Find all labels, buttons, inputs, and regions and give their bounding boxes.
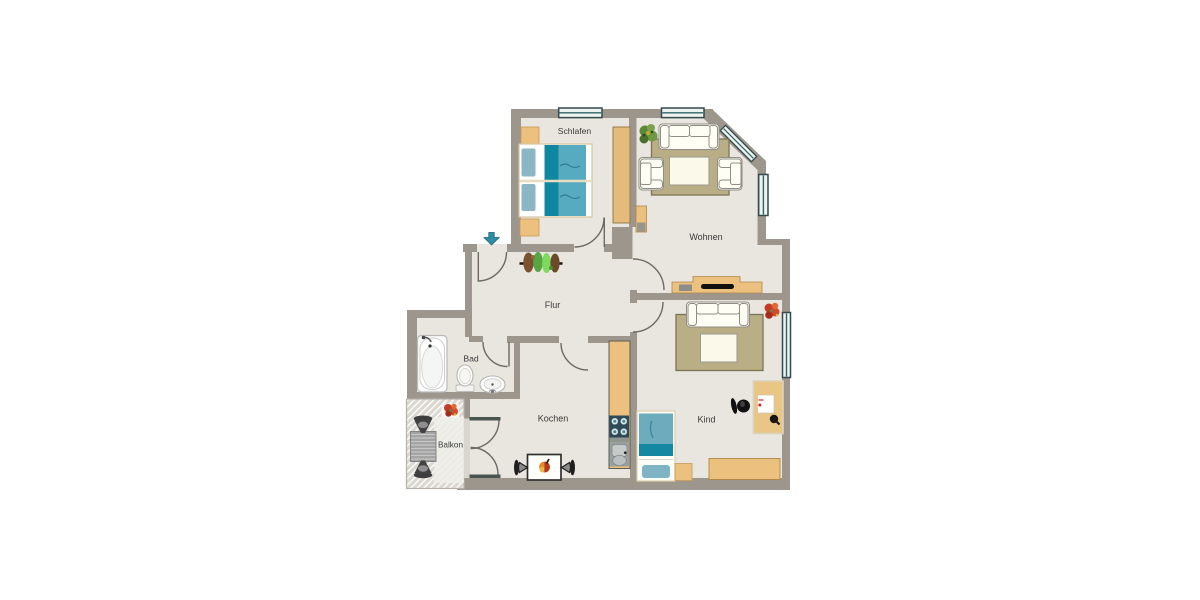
svg-text:Flur: Flur <box>545 300 561 310</box>
svg-text:Balkon: Balkon <box>438 441 463 450</box>
svg-text:Kochen: Kochen <box>538 414 569 424</box>
svg-text:Schlafen: Schlafen <box>558 126 592 136</box>
svg-text:Bad: Bad <box>463 354 479 364</box>
svg-text:Kind: Kind <box>697 415 715 425</box>
svg-text:Wohnen: Wohnen <box>689 232 722 242</box>
